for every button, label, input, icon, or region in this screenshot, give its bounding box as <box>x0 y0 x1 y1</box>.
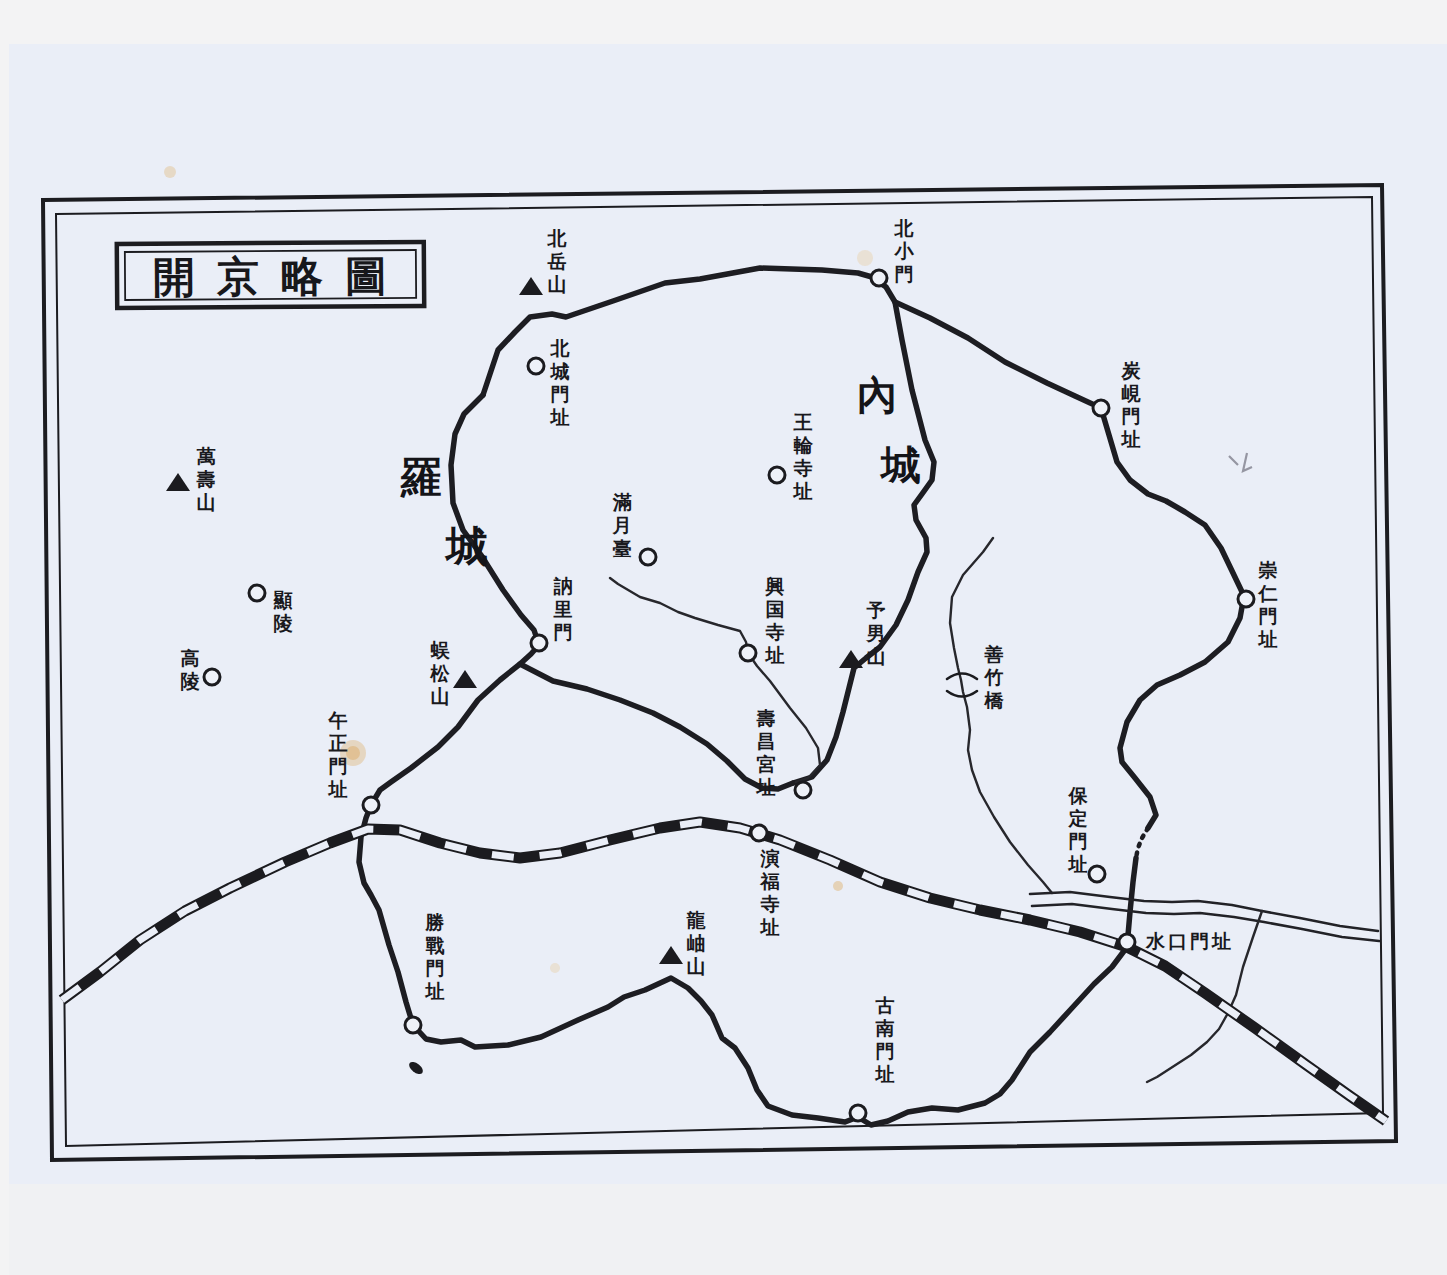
left-scan-margin <box>0 0 9 1275</box>
wangnyun-temple-site-circle-marker <box>769 467 785 483</box>
sugu-gate-site-circle-marker <box>1119 934 1135 950</box>
sungin-gate-site-circle-marker <box>1238 591 1254 607</box>
kaegyong-sketch-map: 開京略圖 北岳山北小門北城門址炭峴門址王輪寺址萬壽山滿月臺崇仁門址顯陵訥里門興国… <box>0 0 1447 1275</box>
mansusan-mountain-label: 萬壽山 <box>196 446 216 513</box>
manwoldae-site-label: 滿月臺 <box>612 492 632 559</box>
bukseongmun-gate-site-circle-marker <box>528 358 544 374</box>
buksomun-gate-circle-marker <box>871 270 887 286</box>
seungjeon-gate-site-circle-marker <box>405 1017 421 1033</box>
stain-spot <box>164 166 176 178</box>
map-title: 開京略圖 <box>153 252 409 301</box>
tanhyeon-gate-site-circle-marker <box>1093 400 1109 416</box>
suchang-palace-site-circle-marker <box>795 782 811 798</box>
ojeong-gate-site-circle-marker <box>363 797 379 813</box>
scanned-map-page: 開京略圖 北岳山北小門北城門址炭峴門址王輪寺址萬壽山滿月臺崇仁門址顯陵訥里門興国… <box>0 0 1447 1275</box>
nullimun-gate-label: 訥里門 <box>553 576 573 643</box>
yeonbok-temple-site-circle-marker <box>751 825 767 841</box>
seonjuk-bridge-label: 善竹橋 <box>984 644 1005 711</box>
buksomun-gate-label: 北小門 <box>894 218 915 285</box>
manwoldae-site-circle-marker <box>640 549 656 565</box>
yenamsan-mountain-label: 予男山 <box>866 600 886 667</box>
osongsan-mountain-label: 蜈松山 <box>430 640 451 707</box>
goneung-tomb-circle-marker <box>204 669 220 685</box>
stain-spot <box>857 250 873 266</box>
stain-spot <box>346 746 360 760</box>
sugu-gate-site-label: 水口門址 <box>1145 931 1234 952</box>
bojeong-gate-site-circle-marker <box>1089 866 1105 882</box>
heungguk-temple-site-circle-marker <box>740 645 756 661</box>
title-box: 開京略圖 <box>117 242 424 308</box>
bottom-scan-margin <box>0 1184 1447 1275</box>
nullimun-gate-circle-marker <box>531 635 547 651</box>
hyeonneung-tomb-circle-marker <box>249 585 265 601</box>
stain-spot <box>833 881 843 891</box>
gonam-gate-site-circle-marker <box>850 1105 866 1121</box>
top-scan-margin <box>0 0 1447 44</box>
bugaksan-mountain-label: 北岳山 <box>547 228 567 295</box>
stain-spot <box>550 963 560 973</box>
yongsusan-mountain-label: 龍岫山 <box>686 910 707 977</box>
